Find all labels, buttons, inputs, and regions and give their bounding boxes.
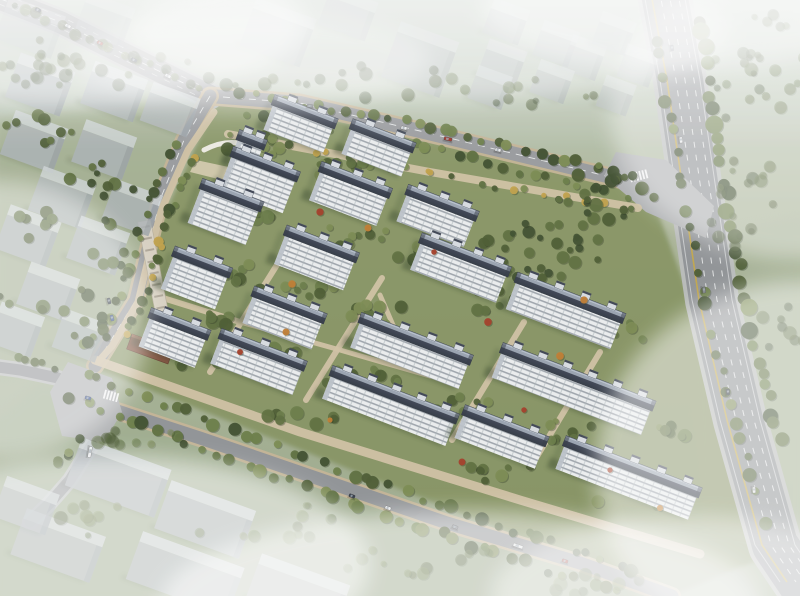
scene-svg	[0, 0, 800, 596]
atmosphere-veil	[0, 0, 800, 596]
aerial-rendering	[0, 0, 800, 596]
